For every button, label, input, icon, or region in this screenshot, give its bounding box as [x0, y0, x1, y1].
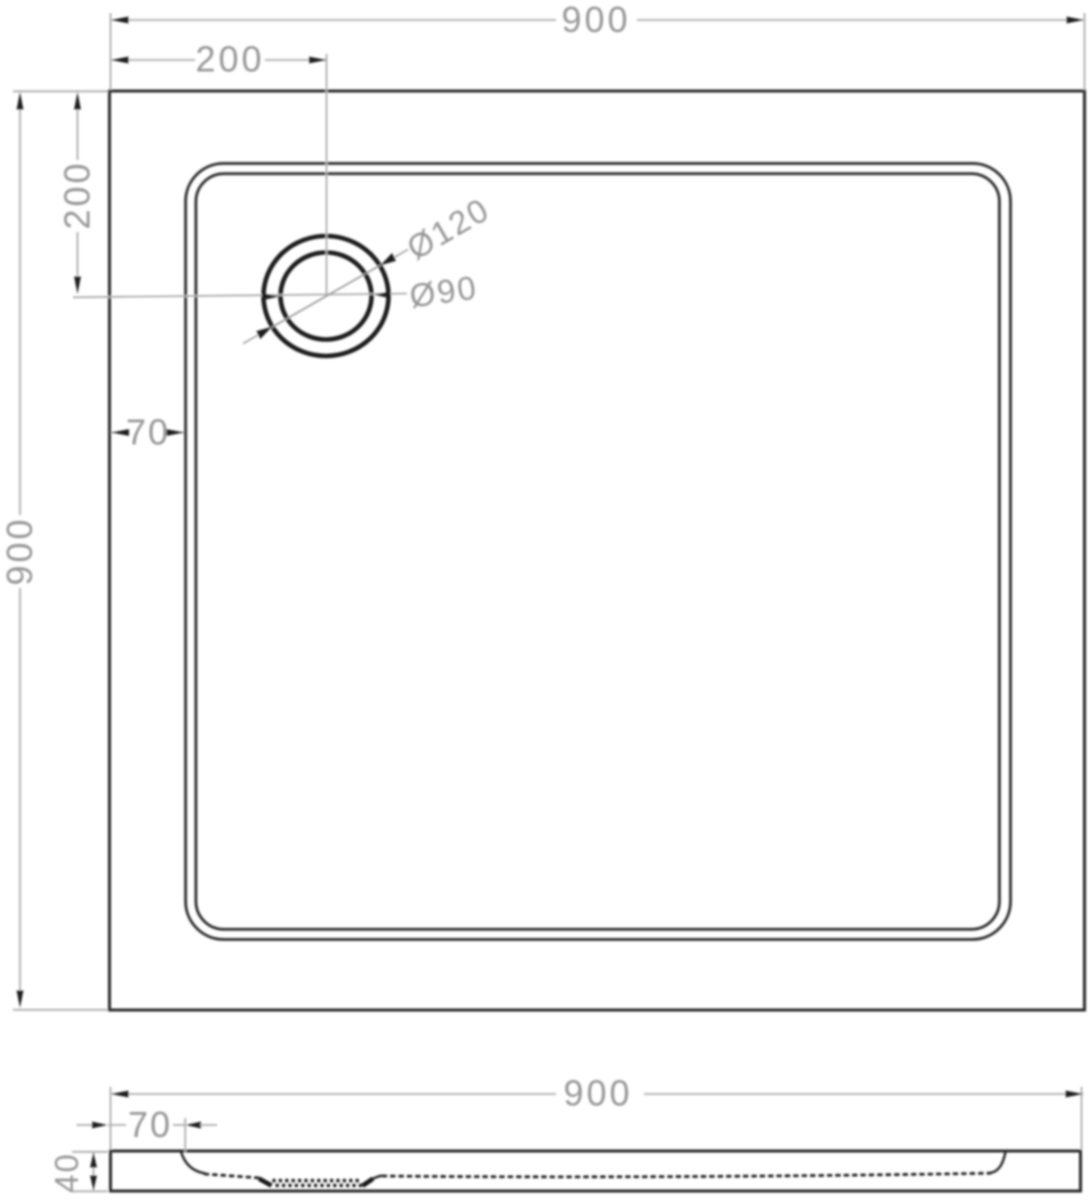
- svg-text:Ø90: Ø90: [407, 268, 480, 314]
- svg-text:900: 900: [563, 1073, 632, 1114]
- svg-text:Ø120: Ø120: [401, 190, 496, 266]
- svg-text:200: 200: [57, 160, 98, 229]
- svg-text:70: 70: [126, 412, 170, 453]
- svg-text:70: 70: [128, 1104, 172, 1145]
- svg-text:900: 900: [561, 0, 630, 40]
- svg-text:40: 40: [48, 1152, 85, 1193]
- svg-text:200: 200: [195, 39, 264, 80]
- svg-text:900: 900: [0, 516, 40, 585]
